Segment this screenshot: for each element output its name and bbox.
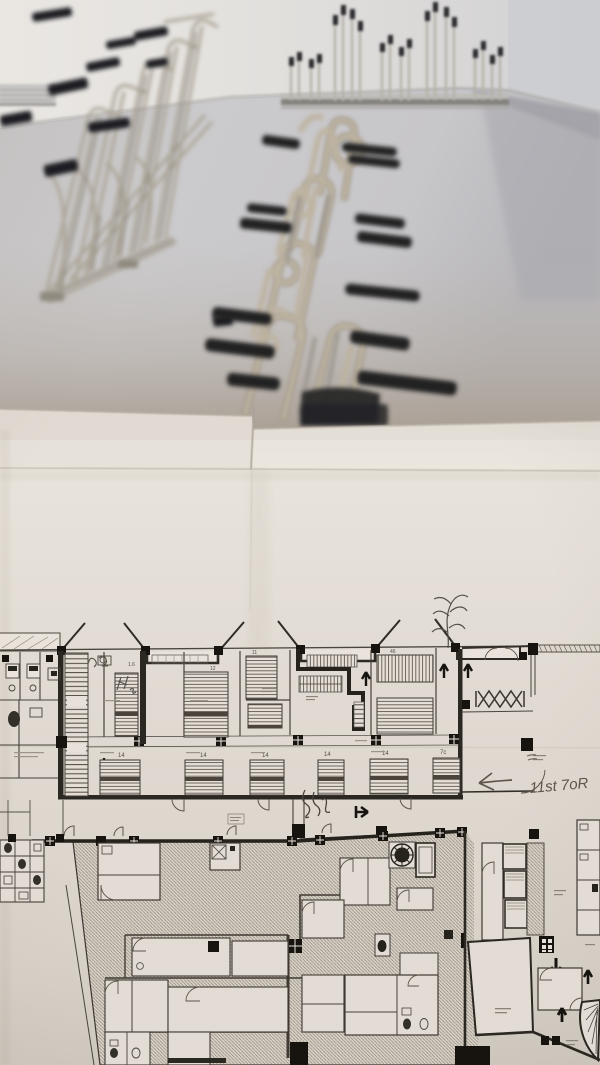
svg-text:12: 12 xyxy=(210,666,216,672)
svg-text:14: 14 xyxy=(324,752,331,758)
svg-text:46: 46 xyxy=(390,649,396,655)
svg-text:11: 11 xyxy=(252,650,257,656)
svg-text:1.6: 1.6 xyxy=(128,662,135,668)
svg-text:14: 14 xyxy=(118,753,125,759)
svg-text:14: 14 xyxy=(262,753,269,759)
svg-text:14: 14 xyxy=(200,753,207,759)
svg-text:7c: 7c xyxy=(440,750,446,756)
